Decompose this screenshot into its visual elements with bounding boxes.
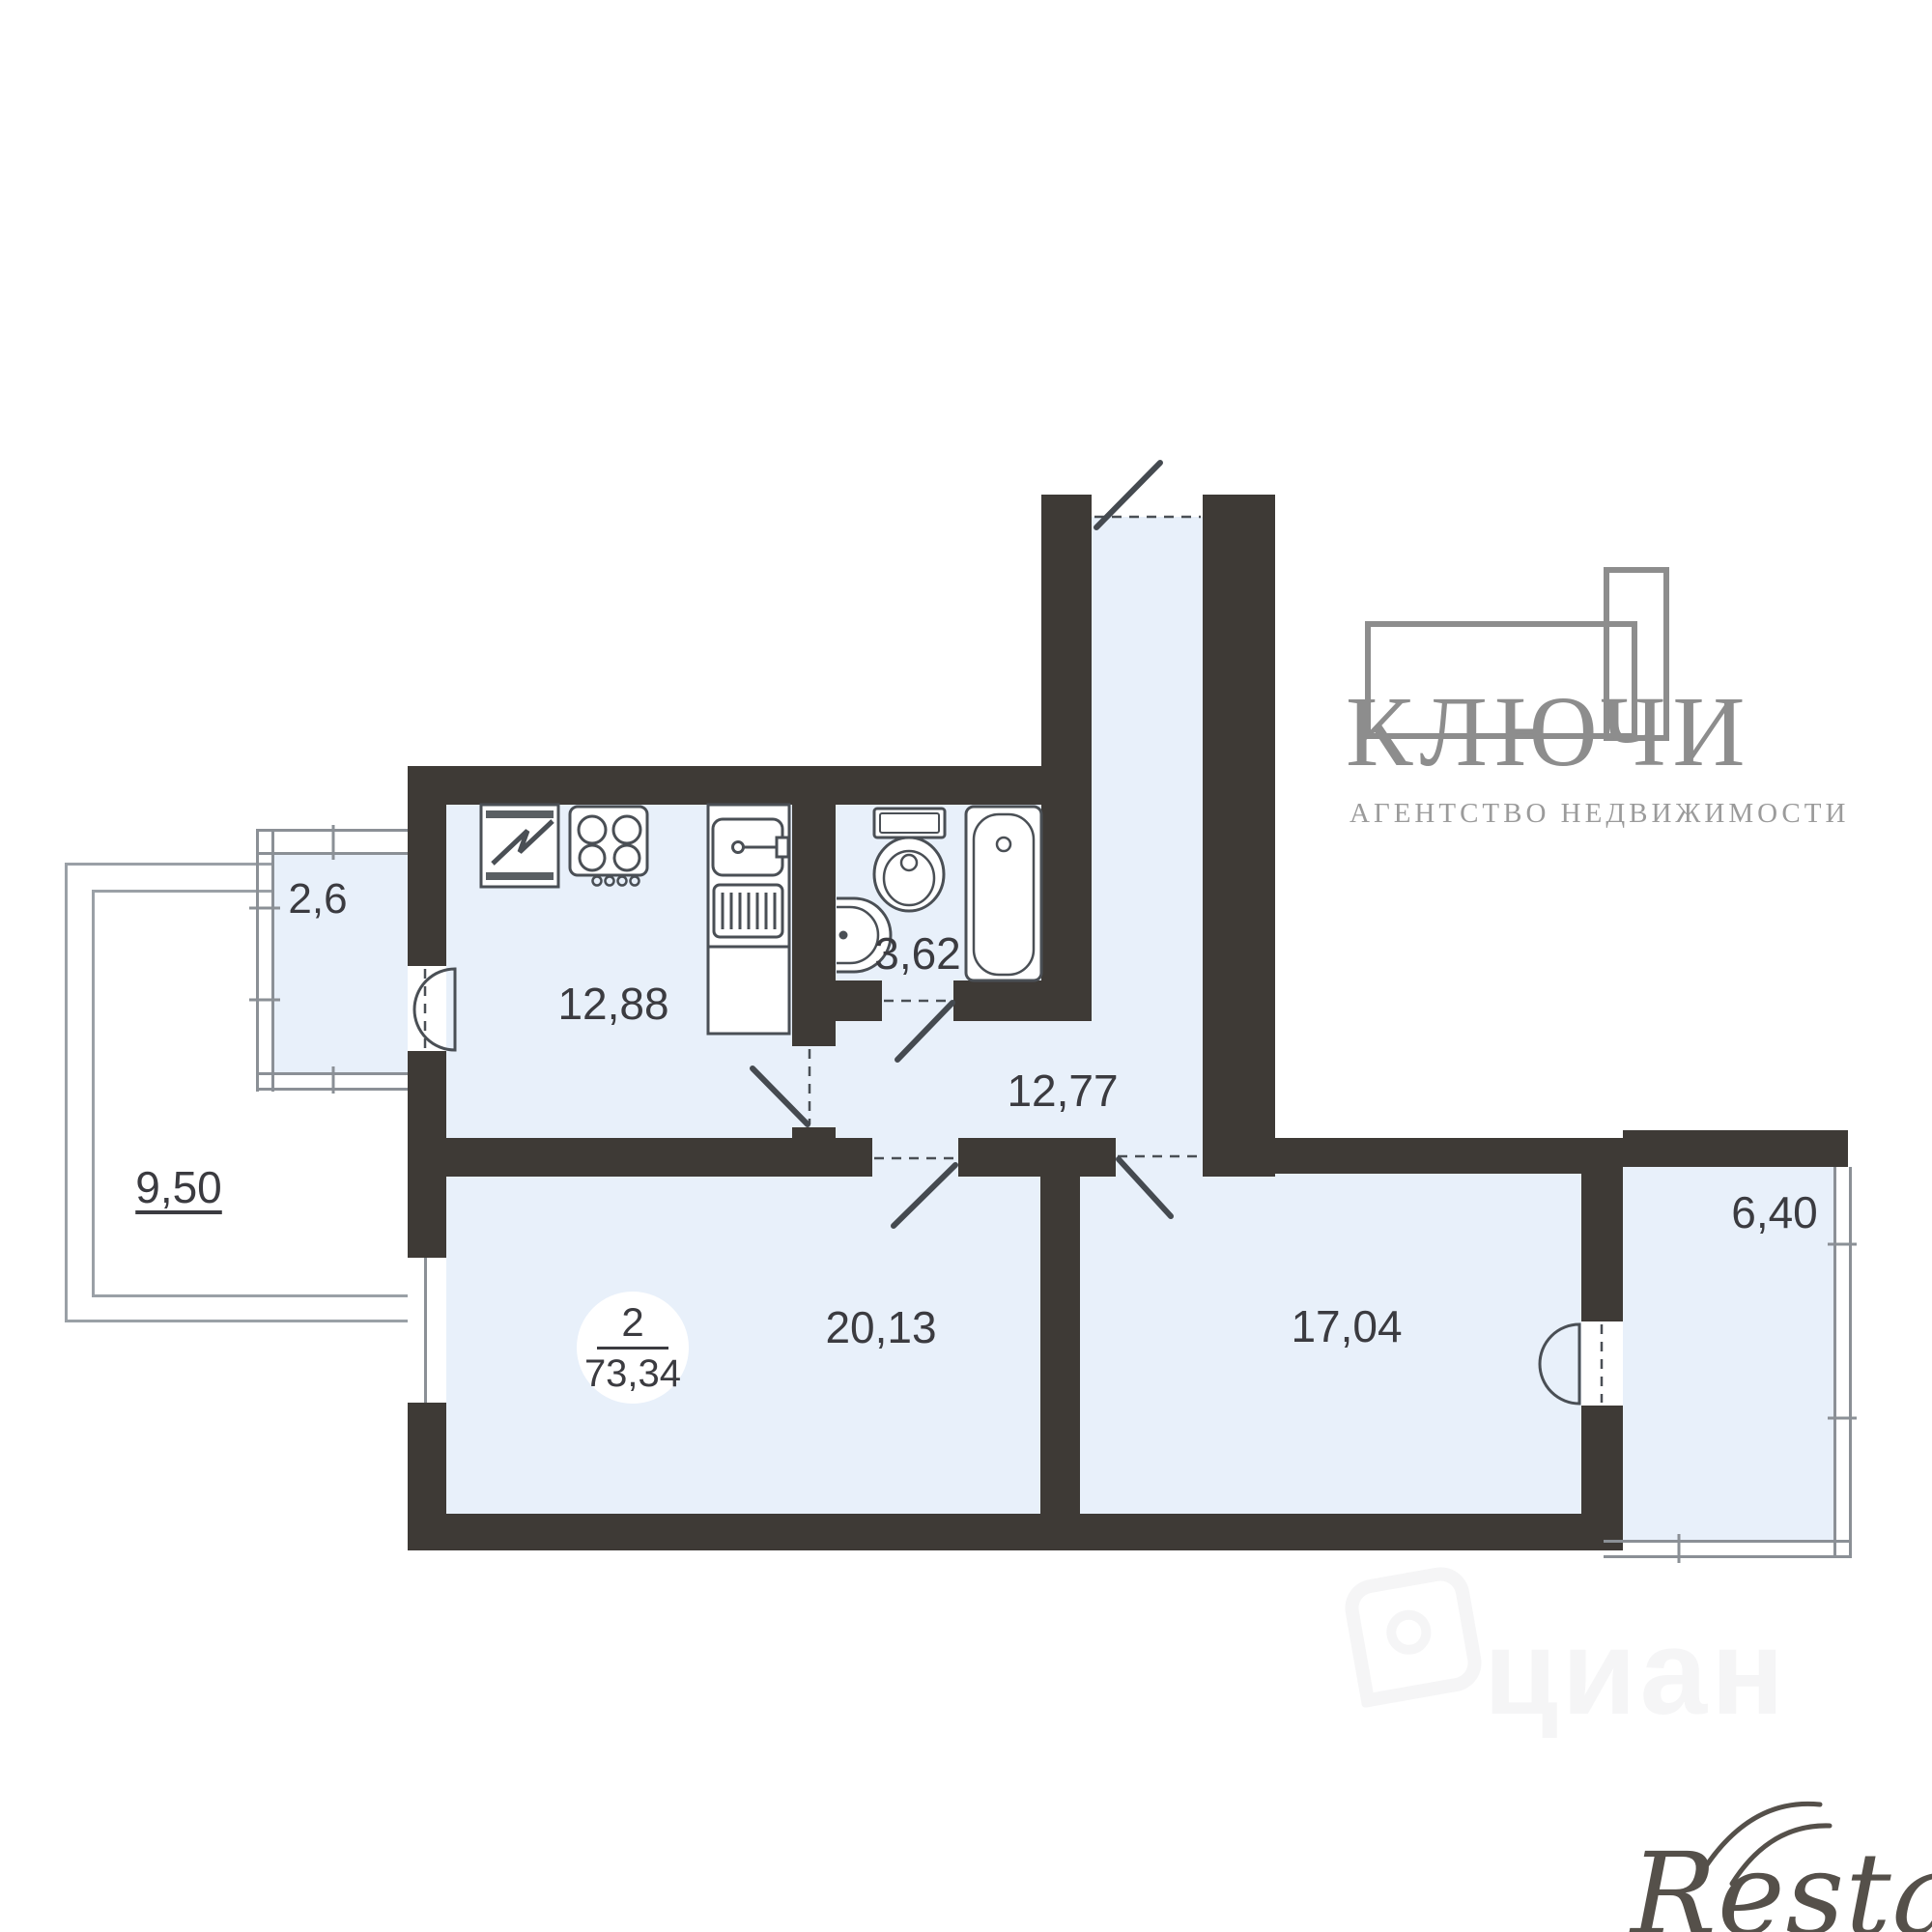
room-label-bathroom: 3,62 bbox=[850, 927, 985, 980]
agency-logo-text: КЛЮЧИ bbox=[1346, 682, 1752, 782]
unit-rooms-count: 2 bbox=[621, 1300, 643, 1345]
wall-corridor-right bbox=[1203, 495, 1275, 1177]
room-label-living-room: 20,13 bbox=[794, 1301, 968, 1353]
wall-corridor-left bbox=[1041, 495, 1092, 1021]
room-label-kitchen: 12,88 bbox=[522, 978, 705, 1030]
kitchen-floor bbox=[446, 805, 792, 1140]
unit-total-area: 73,34 bbox=[584, 1352, 681, 1395]
badge-divider bbox=[597, 1347, 668, 1350]
balcony-glazing bbox=[256, 829, 408, 832]
bedroom-balcony-door-opening bbox=[1581, 1321, 1623, 1406]
balcony-glazing bbox=[1604, 1540, 1852, 1543]
wall-bedroom-right bbox=[1581, 1138, 1623, 1321]
bedroom-door-opening bbox=[1116, 1138, 1203, 1174]
window-pane-line bbox=[424, 1258, 427, 1403]
wall-top bbox=[408, 766, 1092, 805]
wall-room-divider bbox=[1040, 1177, 1080, 1514]
wall-bedroom-right bbox=[1581, 1406, 1623, 1550]
window-opening bbox=[408, 1258, 446, 1403]
room-label-hallway: 12,77 bbox=[976, 1065, 1150, 1117]
kitchen-door-opening bbox=[792, 1046, 836, 1127]
balcony-glazing bbox=[1604, 1555, 1852, 1558]
unit-info-badge: 2 73,34 bbox=[577, 1292, 689, 1404]
wall-bottom bbox=[408, 1514, 1623, 1550]
balcony-glazing bbox=[271, 829, 274, 1092]
wall-bathroom-bottom bbox=[792, 980, 882, 1021]
terrace-outline bbox=[65, 1320, 408, 1322]
balcony-glazing bbox=[256, 1072, 408, 1075]
wall-mid bbox=[958, 1138, 1116, 1177]
agency-logo-subtitle: АГЕНТСТВО НЕДВИЖИМОСТИ bbox=[1350, 798, 1849, 830]
balcony-glazing bbox=[256, 852, 408, 855]
living-room-door-opening bbox=[872, 1138, 958, 1177]
wall-bedroom-top bbox=[1203, 1138, 1623, 1174]
terrace-outline bbox=[92, 1294, 408, 1297]
room-label-balcony-small: 2,6 bbox=[274, 875, 361, 923]
wall-balcony-right-top bbox=[1623, 1130, 1848, 1167]
restate-watermark: Restate bbox=[1631, 1828, 1932, 1932]
cian-pin-icon bbox=[1341, 1563, 1487, 1709]
terrace-outline bbox=[92, 890, 95, 1297]
cian-watermark: циан bbox=[1484, 1604, 1788, 1742]
balcony-glazing bbox=[256, 829, 259, 1092]
wall-mid bbox=[408, 1138, 872, 1177]
wall-bathroom-bottom bbox=[953, 980, 1092, 1021]
wall-left bbox=[408, 766, 446, 966]
room-label-balcony-right: 6,40 bbox=[1688, 1186, 1861, 1238]
room-label-bedroom: 17,04 bbox=[1260, 1300, 1434, 1352]
room-label-terrace: 9,50 bbox=[126, 1161, 232, 1213]
bathroom-door-opening bbox=[882, 980, 953, 1021]
terrace-outline bbox=[65, 863, 68, 1322]
floor-plan-canvas: 12,88 3,62 12,77 20,13 17,04 2,6 9,50 6,… bbox=[0, 0, 1932, 1932]
balcony-door-opening bbox=[408, 966, 446, 1051]
balcony-glazing bbox=[256, 1088, 408, 1091]
